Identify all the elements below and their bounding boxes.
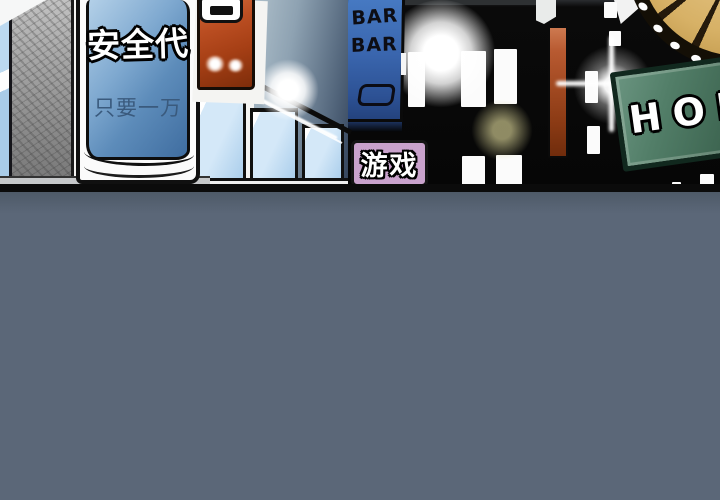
sign-gloss: [205, 56, 225, 72]
bar-sign-line1: BAR: [347, 4, 402, 30]
game-sign-label: 游戏: [361, 144, 419, 183]
bar-sign-line2: BAR: [347, 33, 401, 57]
hof-sign: HOF: [610, 56, 720, 172]
safety-sign-title: 安全代: [85, 17, 190, 68]
bar-sign: BAR BAR: [343, 0, 405, 122]
street-edge-line: [0, 184, 720, 192]
bar-sign-logo: [357, 84, 396, 106]
sign-gloss: [227, 59, 244, 72]
game-sign: 游戏: [351, 140, 428, 187]
partial-sign-glyph: [199, 0, 243, 23]
lit-window: [604, 2, 617, 18]
building-pillar: [10, 0, 74, 186]
street-ground: [0, 192, 720, 500]
hof-sign-label: HOF: [618, 81, 720, 143]
maroon-banner: [548, 26, 568, 158]
safety-sign-subtitle: 只要一万: [86, 92, 190, 122]
dim-yellow-glow: [466, 94, 538, 166]
lens-flare: [256, 58, 320, 122]
left-window-strip: [0, 0, 12, 188]
lit-window: [587, 126, 600, 154]
window-pane: [196, 96, 246, 184]
comic-panel: HOF BAR BAR 游戏 安全代 只要一万: [0, 0, 720, 500]
edge-highlight: [401, 53, 406, 75]
